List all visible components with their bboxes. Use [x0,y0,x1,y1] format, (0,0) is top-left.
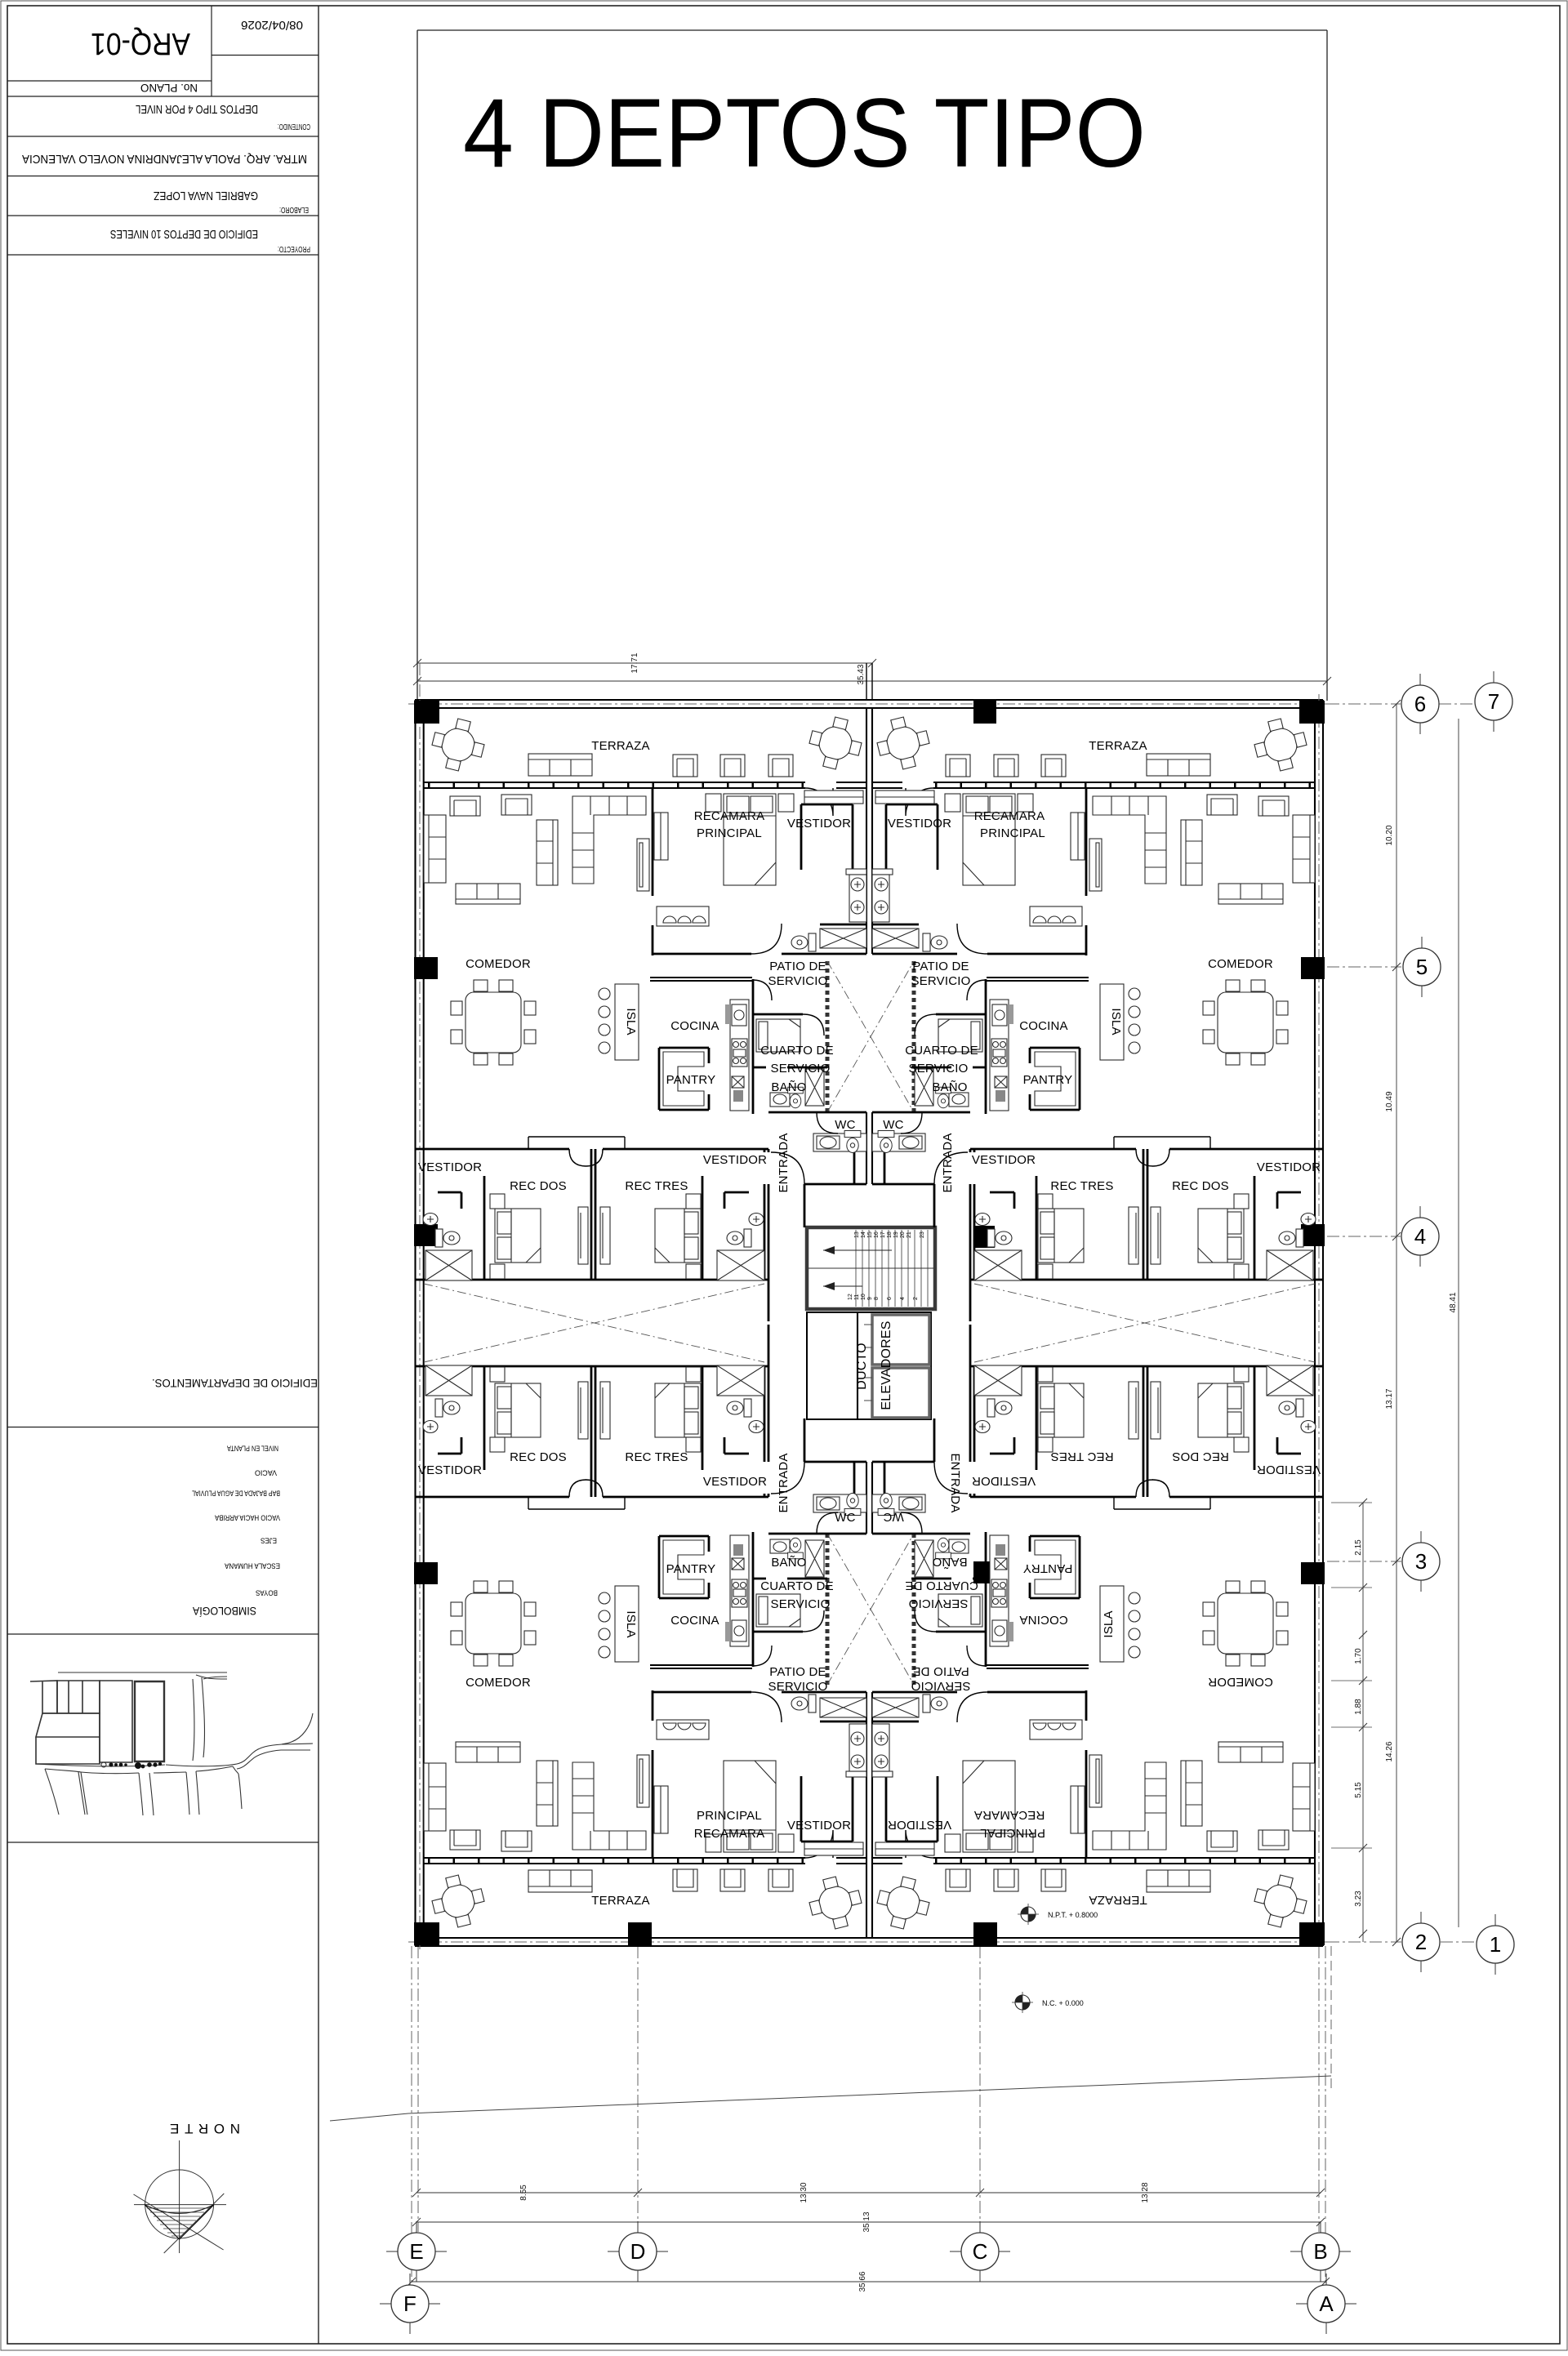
svg-text:ISLA: ISLA [624,1610,638,1637]
svg-text:TERRAZA: TERRAZA [591,1894,649,1908]
svg-text:11: 11 [854,1294,860,1300]
svg-text:ELABORO:: ELABORO: [279,205,309,214]
svg-text:3.23: 3.23 [1354,1891,1363,1907]
svg-text:PRINCIPAL: PRINCIPAL [980,826,1045,840]
svg-text:10.20: 10.20 [1385,825,1394,845]
svg-text:VESTIDOR: VESTIDOR [972,1474,1036,1488]
svg-text:8.55: 8.55 [519,2185,528,2201]
svg-text:DEPTOS TIPO 4 POR NIVEL: DEPTOS TIPO 4 POR NIVEL [136,102,258,116]
svg-text:E: E [409,2239,423,2264]
svg-text:7: 7 [1488,689,1499,714]
svg-text:BAP BAJADA DE AGUA PLUVIAL: BAP BAJADA DE AGUA PLUVIAL [192,1489,280,1498]
svg-text:PROYECTO:: PROYECTO: [278,244,310,253]
svg-text:SERVICIO: SERVICIO [770,1062,830,1076]
svg-text:SERVICIO: SERVICIO [768,1680,827,1694]
svg-text:CUARTO DE: CUARTO DE [760,1579,834,1593]
svg-text:B: B [1313,2239,1327,2264]
svg-text:19: 19 [893,1231,899,1238]
svg-text:TERRAZA: TERRAZA [1089,1893,1147,1907]
svg-text:ESCALA HUMANA: ESCALA HUMANA [224,1561,280,1570]
svg-text:VESTIDOR: VESTIDOR [1257,1160,1321,1174]
svg-text:SERVICIO: SERVICIO [908,1597,968,1610]
svg-text:REC TRES: REC TRES [625,1450,688,1464]
svg-text:2: 2 [913,1297,919,1300]
svg-text:NIVEL EN PLANTA: NIVEL EN PLANTA [226,1444,278,1453]
svg-text:REC TRES: REC TRES [1050,1450,1113,1463]
svg-text:ENTRADA: ENTRADA [948,1453,962,1512]
svg-text:BAÑO: BAÑO [932,1080,967,1094]
svg-text:35.43: 35.43 [857,664,866,684]
svg-text:COMEDOR: COMEDOR [1208,957,1273,971]
svg-text:5.15: 5.15 [1354,1782,1363,1798]
svg-text:VACIO HACIA ARRIBA: VACIO HACIA ARRIBA [214,1513,280,1522]
svg-text:CUARTO DE: CUARTO DE [905,1044,978,1058]
svg-text:23: 23 [920,1231,925,1238]
svg-text:WC: WC [835,1118,855,1132]
svg-text:GABRIEL NAVA LOPEZ: GABRIEL NAVA LOPEZ [154,189,258,203]
svg-text:N.P.T. + 0.8000: N.P.T. + 0.8000 [1048,1911,1098,1919]
svg-text:A: A [1319,2291,1334,2316]
svg-text:PRINCIPAL: PRINCIPAL [697,1809,762,1823]
svg-text:48.41: 48.41 [1449,1292,1458,1312]
svg-text:VESTIDOR: VESTIDOR [703,1475,767,1489]
svg-text:SERVICIO: SERVICIO [770,1597,830,1611]
svg-text:BAÑO: BAÑO [932,1555,967,1569]
svg-text:4 DEPTOS TIPO: 4 DEPTOS TIPO [463,78,1146,188]
svg-text:CUARTO DE: CUARTO DE [905,1579,978,1592]
svg-text:10.49: 10.49 [1385,1091,1394,1111]
svg-text:ENTRADA: ENTRADA [777,1133,791,1192]
svg-text:10: 10 [861,1294,866,1300]
svg-text:TERRAZA: TERRAZA [591,739,649,753]
svg-text:9: 9 [867,1297,873,1300]
svg-text:4: 4 [1414,1224,1426,1249]
svg-text:RECAMARA: RECAMARA [694,809,765,823]
svg-text:TERRAZA: TERRAZA [1089,739,1147,753]
svg-text:PATIO DE: PATIO DE [912,960,969,973]
svg-text:REC DOS: REC DOS [510,1450,567,1464]
svg-text:14.26: 14.26 [1385,1741,1394,1761]
svg-text:VESTIDOR: VESTIDOR [418,1463,482,1477]
svg-text:14: 14 [861,1231,866,1238]
svg-text:ISLA: ISLA [1102,1610,1116,1637]
svg-text:13.28: 13.28 [1141,2182,1150,2202]
svg-text:BOYAS: BOYAS [256,1588,278,1597]
svg-text:WC: WC [835,1511,855,1525]
svg-text:VESTIDOR: VESTIDOR [888,817,951,831]
svg-text:ISLA: ISLA [624,1008,638,1035]
svg-text:REC DOS: REC DOS [510,1179,567,1193]
svg-text:20: 20 [900,1231,906,1238]
svg-text:1.70: 1.70 [1354,1648,1363,1664]
svg-text:PANTRY: PANTRY [1023,1073,1073,1087]
svg-text:EDIFICIO DE DEPTOS 10 NIVELES: EDIFICIO DE DEPTOS 10 NIVELES [110,227,258,241]
svg-text:SERVICIO: SERVICIO [911,1679,970,1693]
svg-text:VESTIDOR: VESTIDOR [1257,1463,1321,1476]
svg-text:REC TRES: REC TRES [625,1179,688,1193]
svg-text:REC DOS: REC DOS [1172,1179,1229,1193]
svg-text:13: 13 [854,1231,860,1238]
svg-text:PATIO DE: PATIO DE [769,960,826,973]
svg-text:SIMBOLOGÍA: SIMBOLOGÍA [192,1605,256,1618]
svg-text:VESTIDOR: VESTIDOR [787,1819,851,1833]
svg-text:VESTIDOR: VESTIDOR [418,1160,482,1174]
svg-text:PANTRY: PANTRY [666,1562,716,1576]
svg-text:WC: WC [883,1118,903,1132]
svg-text:6: 6 [1414,692,1426,716]
svg-text:2.15: 2.15 [1354,1539,1363,1556]
svg-text:ELEVADORES: ELEVADORES [880,1321,893,1410]
svg-text:35.66: 35.66 [858,2271,867,2291]
svg-text:1: 1 [1490,1932,1501,1957]
svg-text:17: 17 [880,1231,886,1238]
svg-text:F: F [403,2291,416,2316]
svg-text:ARQ-01: ARQ-01 [91,26,190,60]
svg-text:18: 18 [887,1231,893,1238]
svg-text:SERVICIO: SERVICIO [911,974,970,988]
svg-text:35.13: 35.13 [862,2211,871,2232]
svg-text:C: C [973,2239,988,2264]
svg-text:2: 2 [1415,1930,1427,1954]
svg-text:DUCTO: DUCTO [855,1343,869,1390]
svg-text:CUARTO DE: CUARTO DE [760,1044,834,1058]
svg-text:17.71: 17.71 [630,652,639,673]
svg-text:PATIO DE: PATIO DE [769,1665,826,1679]
svg-text:VESTIDOR: VESTIDOR [972,1153,1036,1167]
svg-text:PANTRY: PANTRY [1023,1561,1073,1575]
svg-text:VESTIDOR: VESTIDOR [787,817,851,831]
svg-text:15: 15 [867,1231,873,1238]
svg-text:REC DOS: REC DOS [1172,1450,1229,1463]
svg-text:SERVICIO: SERVICIO [768,974,827,988]
svg-text:COMEDOR: COMEDOR [465,957,531,971]
svg-text:BAÑO: BAÑO [771,1556,806,1570]
svg-text:WC: WC [883,1510,903,1524]
svg-text:PRINCIPAL: PRINCIPAL [697,826,762,840]
svg-text:21: 21 [906,1231,912,1238]
svg-text:16: 16 [874,1231,880,1238]
svg-text:8: 8 [874,1297,880,1300]
svg-text:ISLA: ISLA [1109,1008,1123,1035]
svg-text:4: 4 [900,1297,906,1300]
svg-text:COMEDOR: COMEDOR [1208,1675,1273,1689]
svg-text:VACIO: VACIO [255,1468,277,1477]
svg-text:No. PLANO: No. PLANO [140,82,198,95]
svg-text:BAÑO: BAÑO [771,1080,806,1094]
svg-text:12: 12 [848,1294,853,1300]
svg-text:3: 3 [1415,1549,1427,1574]
svg-text:VESTIDOR: VESTIDOR [888,1818,951,1832]
svg-text:COCINA: COCINA [670,1019,719,1033]
svg-text:D: D [630,2239,646,2264]
svg-text:COCINA: COCINA [1019,1613,1068,1627]
svg-text:13.30: 13.30 [800,2182,808,2202]
svg-text:VESTIDOR: VESTIDOR [703,1153,767,1167]
svg-text:RECAMARA: RECAMARA [974,1808,1045,1822]
svg-text:5: 5 [1416,955,1428,979]
svg-text:SERVICIO: SERVICIO [908,1062,968,1076]
svg-text:EJES: EJES [261,1536,277,1545]
svg-text:PRINCIPAL: PRINCIPAL [980,1826,1045,1840]
svg-text:RECAMARA: RECAMARA [694,1827,765,1841]
svg-text:CONTENIDO:: CONTENIDO: [278,122,310,131]
svg-text:ENTRADA: ENTRADA [777,1453,791,1512]
svg-text:MTRA. ARQ. PAOLA ALEJANDRINA N: MTRA. ARQ. PAOLA ALEJANDRINA NOVELO VALE… [22,152,307,166]
svg-text:RECAMARA: RECAMARA [974,809,1045,823]
svg-text:EDIFICIO DE DEPARTAMENTOS.: EDIFICIO DE DEPARTAMENTOS. [152,1377,318,1390]
svg-text:PANTRY: PANTRY [666,1073,716,1087]
svg-text:COCINA: COCINA [1019,1019,1068,1033]
svg-text:08/04/2026: 08/04/2026 [241,18,303,32]
svg-text:REC TRES: REC TRES [1050,1179,1113,1193]
svg-text:6: 6 [887,1297,893,1300]
svg-text:1.88: 1.88 [1354,1699,1363,1715]
svg-text:COMEDOR: COMEDOR [465,1676,531,1690]
svg-text:ENTRADA: ENTRADA [941,1133,955,1192]
svg-text:N.C. + 0.000: N.C. + 0.000 [1042,1999,1084,2007]
svg-text:COCINA: COCINA [670,1614,719,1628]
svg-text:PATIO DE: PATIO DE [912,1664,969,1678]
svg-text:13.17: 13.17 [1385,1388,1394,1409]
